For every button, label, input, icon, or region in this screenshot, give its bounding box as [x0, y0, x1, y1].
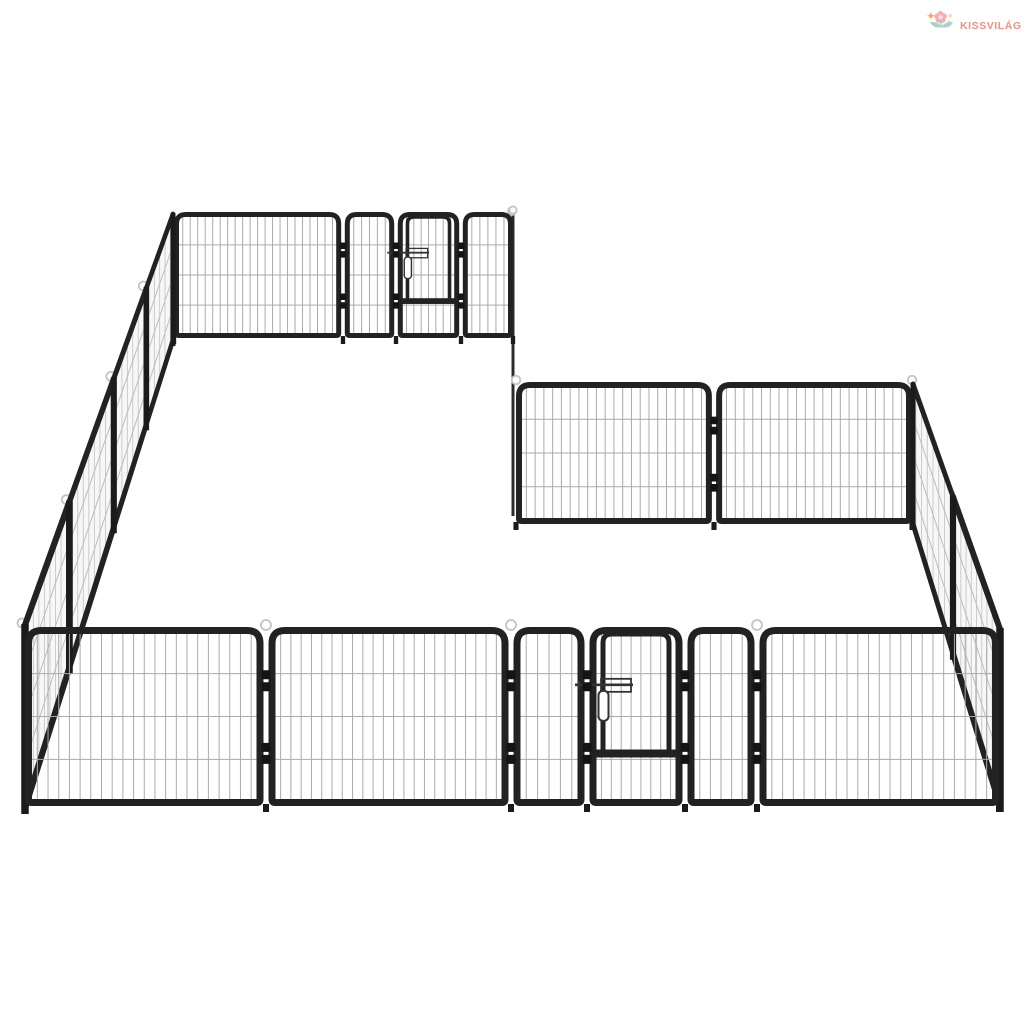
mesh	[468, 217, 508, 333]
left-wall	[18, 213, 174, 814]
product-image: KISSVILÁG	[0, 0, 1024, 1024]
mesh	[521, 634, 578, 799]
flower-sprout-icon	[926, 9, 957, 41]
mesh	[276, 634, 502, 799]
middle-back-wall	[512, 376, 917, 530]
kissvilag-logo: KISSVILÁG	[926, 9, 1022, 41]
front-wall	[22, 620, 1002, 812]
mesh	[350, 217, 389, 333]
mesh	[722, 388, 906, 518]
playpen-scene	[0, 0, 1024, 1024]
mesh	[179, 217, 336, 333]
mesh	[522, 388, 706, 518]
back-wall	[172, 206, 517, 344]
mesh	[695, 634, 748, 799]
brand-name: KISSVILÁG	[960, 20, 1022, 32]
